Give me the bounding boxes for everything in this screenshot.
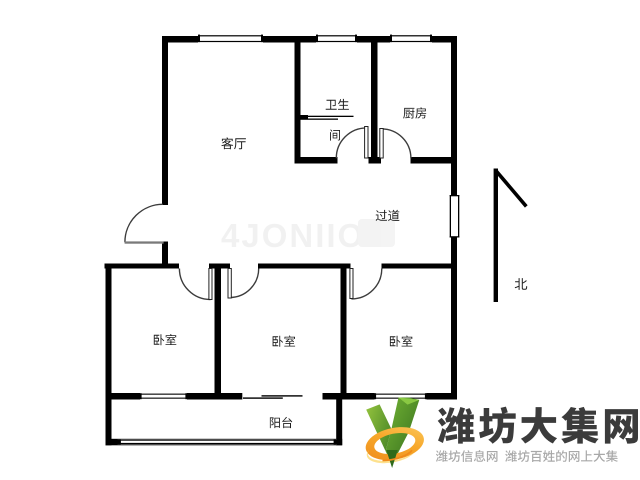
svg-text:4JONIIO: 4JONIIO bbox=[221, 217, 365, 254]
